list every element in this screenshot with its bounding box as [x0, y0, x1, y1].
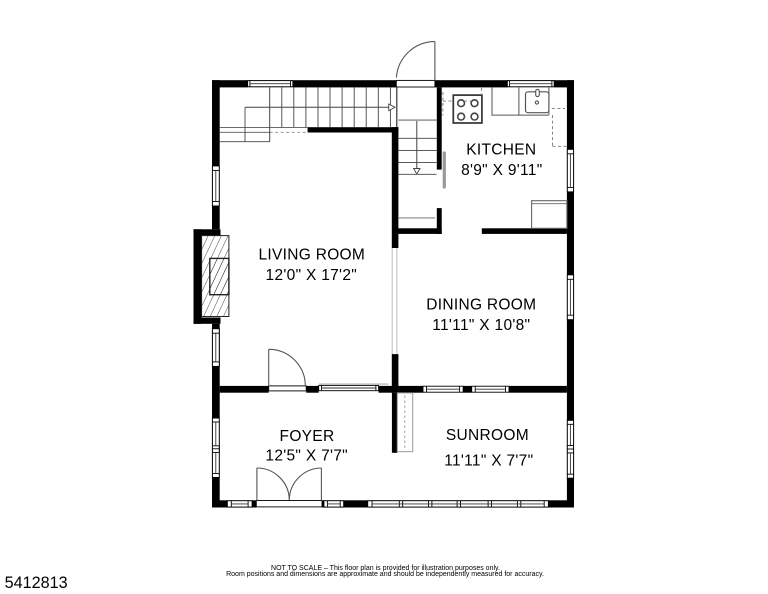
svg-text:11'11" X 7'7": 11'11" X 7'7" — [444, 453, 533, 470]
svg-text:KITCHEN: KITCHEN — [466, 142, 536, 159]
svg-text:5412813: 5412813 — [5, 574, 68, 592]
svg-text:12'0" X 17'2": 12'0" X 17'2" — [266, 267, 358, 284]
svg-text:8'9" X 9'11": 8'9" X 9'11" — [461, 162, 542, 179]
svg-text:Room positions and dimensions: Room positions and dimensions are approx… — [226, 571, 544, 578]
svg-text:LIVING ROOM: LIVING ROOM — [258, 247, 365, 264]
svg-text:12'5" X 7'7": 12'5" X 7'7" — [265, 448, 348, 465]
svg-text:FOYER: FOYER — [280, 428, 335, 445]
svg-text:DINING ROOM: DINING ROOM — [426, 297, 536, 314]
svg-text:SUNROOM: SUNROOM — [446, 427, 529, 444]
svg-text:11'11" X 10'8": 11'11" X 10'8" — [432, 317, 530, 334]
